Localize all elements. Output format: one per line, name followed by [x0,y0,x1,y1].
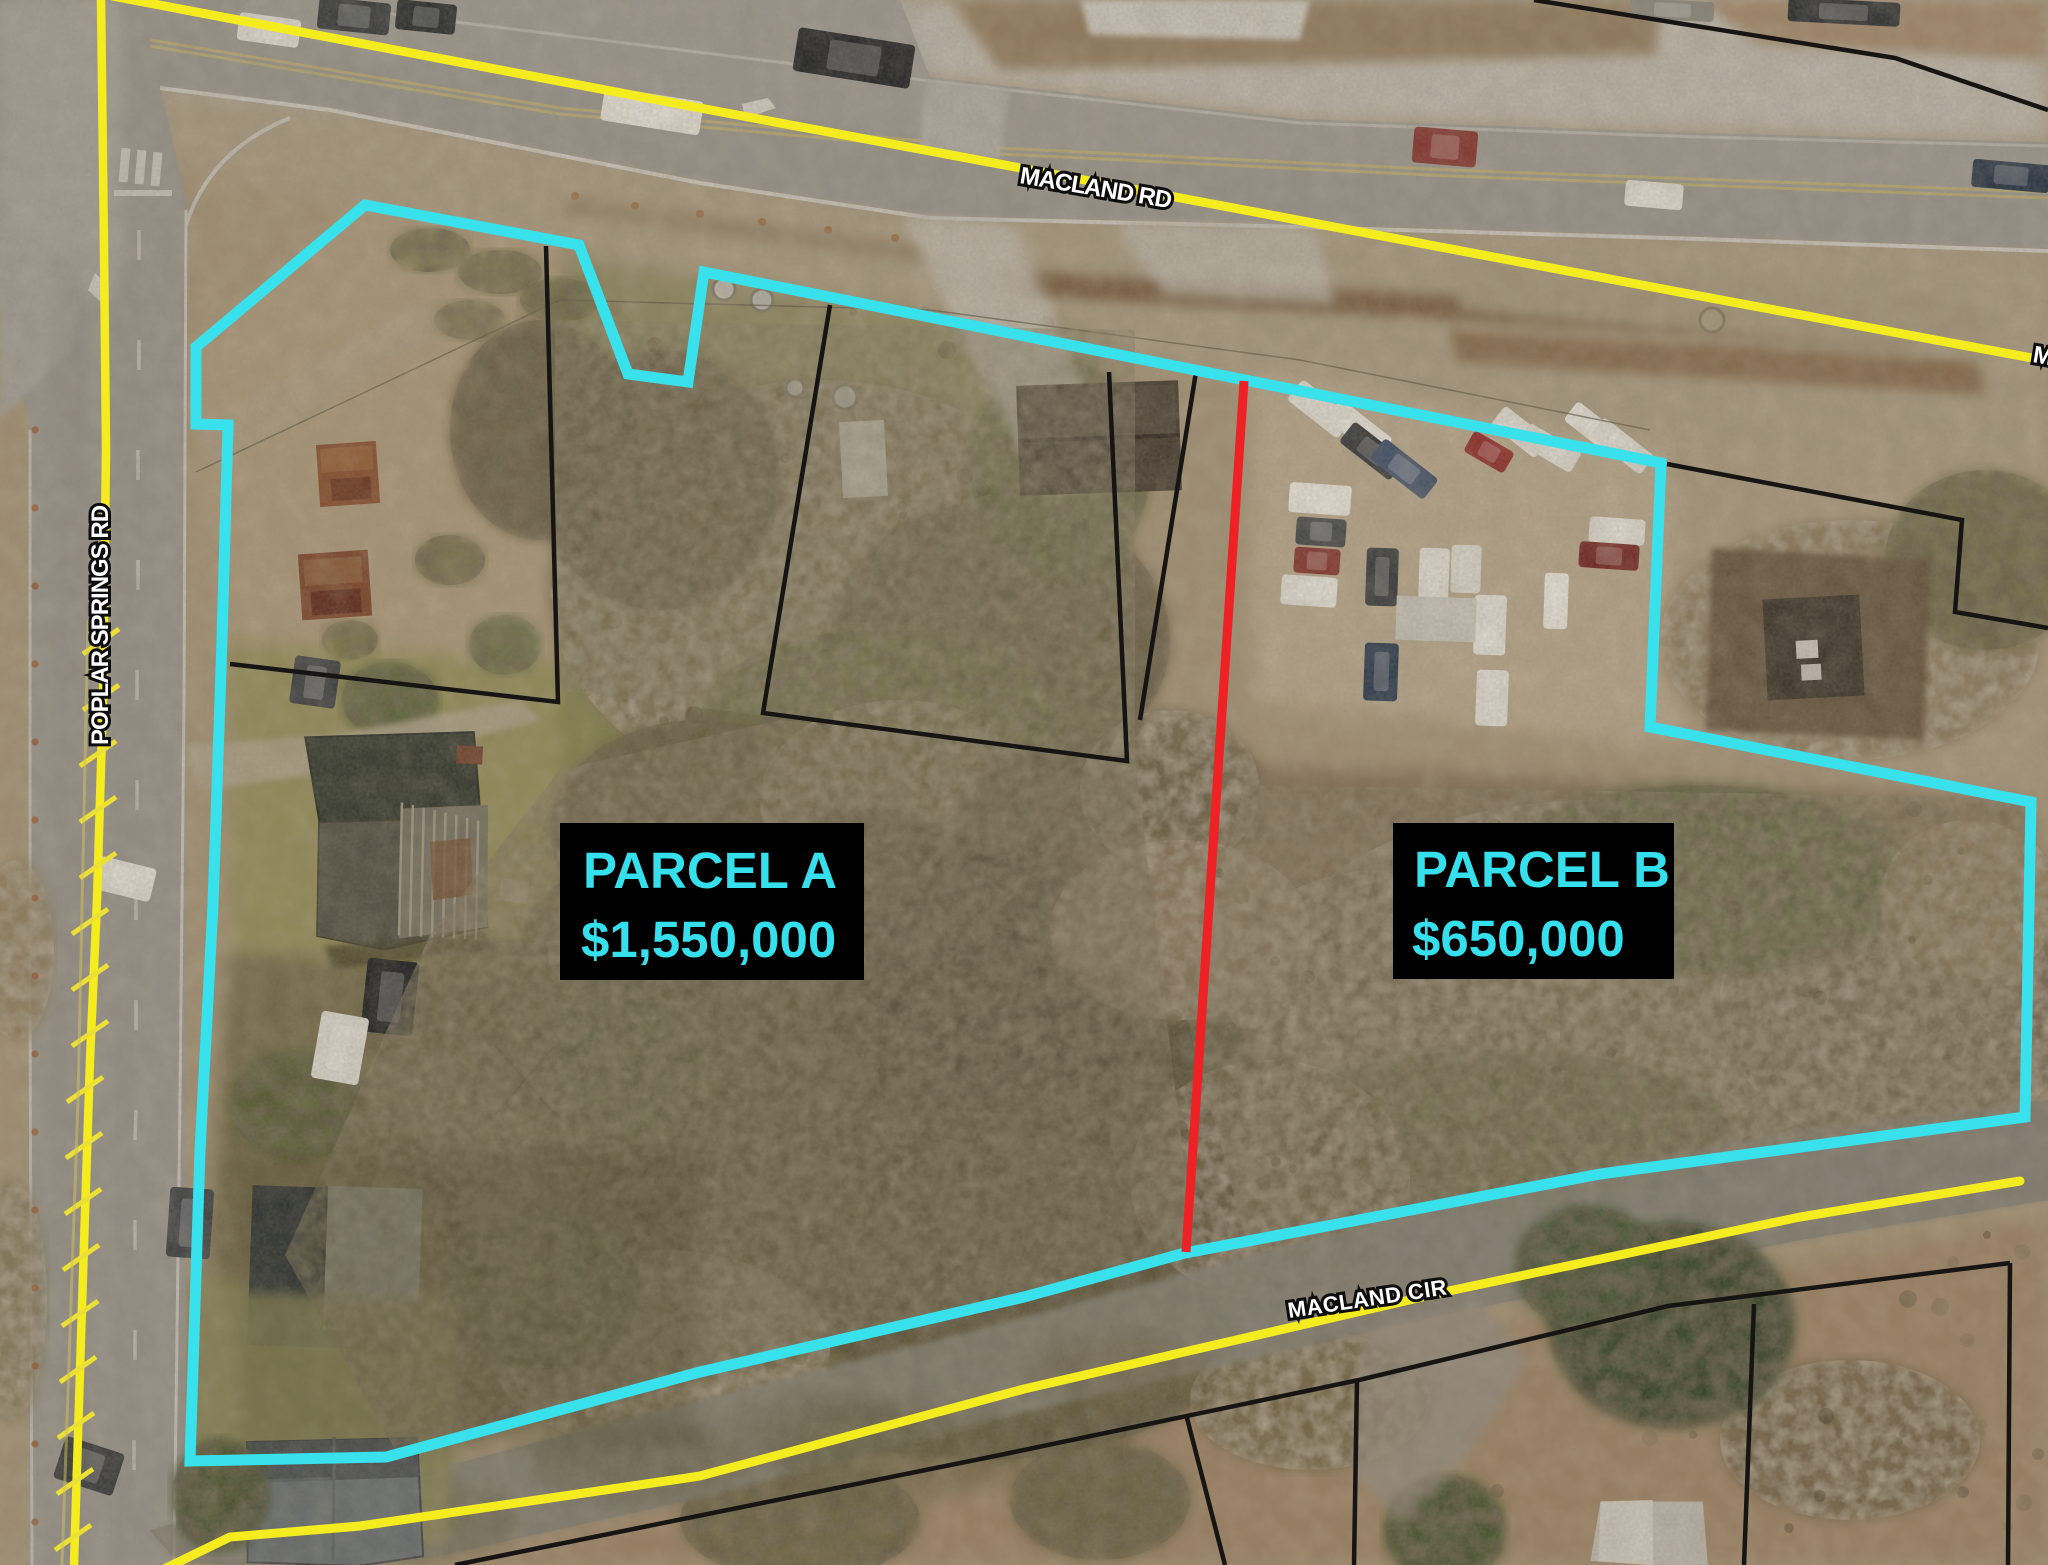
svg-text:$650,000: $650,000 [1412,910,1625,967]
svg-text:$1,550,000: $1,550,000 [581,911,836,968]
svg-text:PARCEL B: PARCEL B [1414,841,1670,898]
svg-text:PARCEL A: PARCEL A [583,842,837,899]
svg-text:POPLAR SPRINGS RD: POPLAR SPRINGS RD [87,505,114,745]
